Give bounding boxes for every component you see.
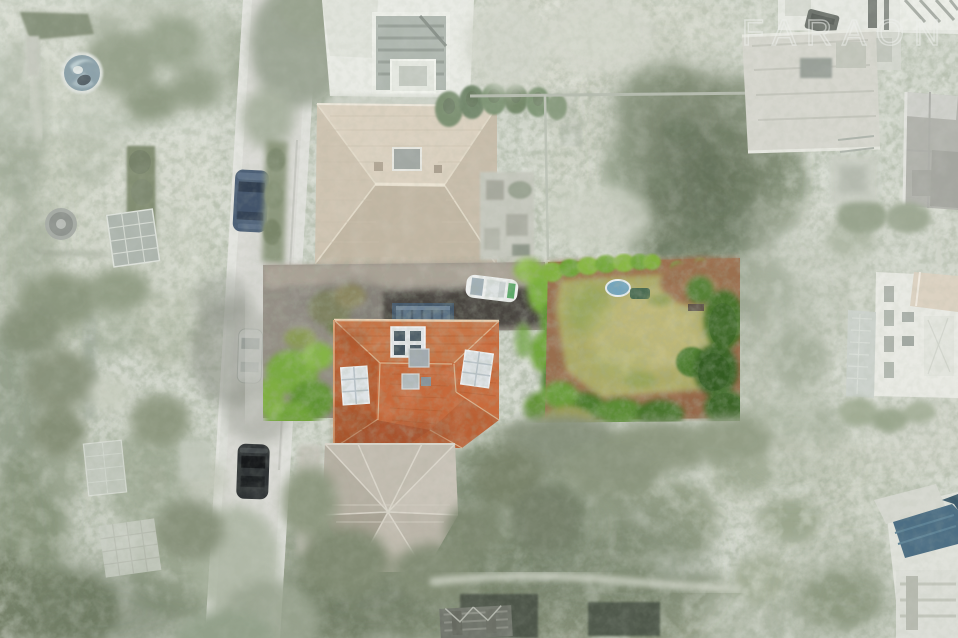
svg-text:FARAON: FARAON: [742, 12, 950, 53]
